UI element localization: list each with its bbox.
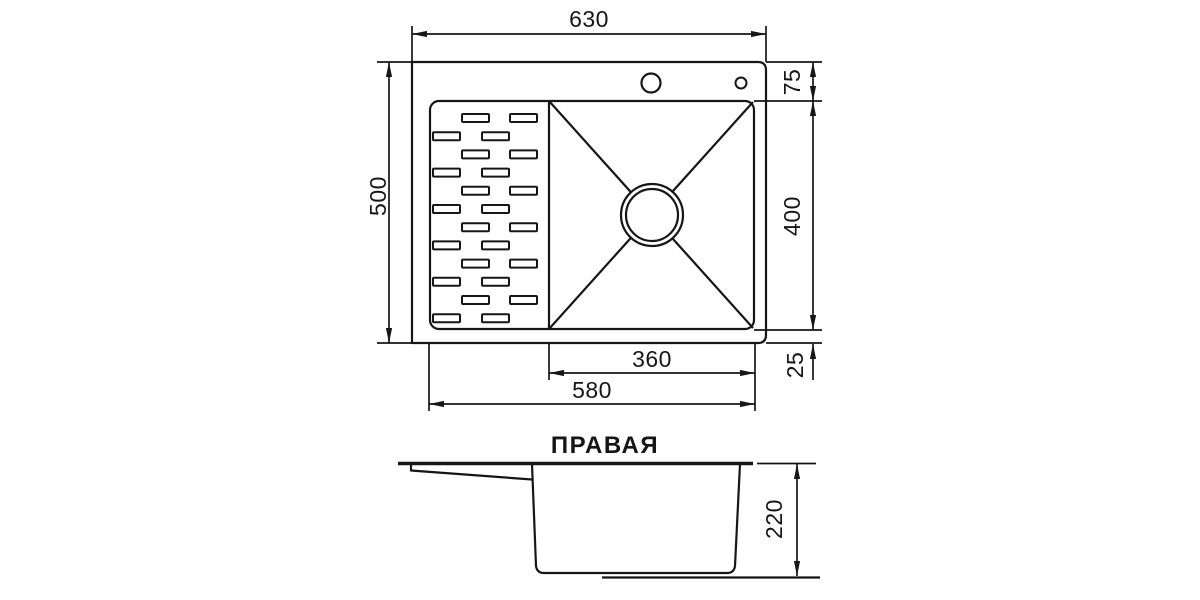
dim-label-front-ledge: 25: [782, 352, 808, 379]
drainboard-slot: [510, 114, 537, 122]
drainboard-slot: [433, 314, 460, 322]
dim-label-inner-width: 580: [572, 377, 612, 403]
side-drainboard-slope: [411, 465, 532, 480]
drainboard-slot: [462, 296, 489, 304]
drainboard-slot: [482, 241, 509, 249]
dimension-inner-width: 580: [429, 344, 755, 411]
top-view: [412, 62, 766, 343]
dim-label-height: 220: [761, 499, 787, 539]
side-view: [398, 464, 820, 578]
sink-inner-basin: [430, 101, 754, 329]
dim-label-bowl-depth: 400: [779, 196, 805, 236]
drainboard-slot: [462, 260, 489, 268]
drainboard-slot: [510, 223, 537, 231]
drainboard-slot: [482, 278, 509, 286]
dimension-back-ledge: 75: [754, 62, 822, 101]
drainboard-slot: [433, 278, 460, 286]
drainboard-slot: [510, 296, 537, 304]
dimension-front-ledge: 25: [766, 343, 822, 380]
drainboard-slot: [433, 205, 460, 213]
drainboard-slot: [482, 205, 509, 213]
dim-label-overall-depth: 500: [365, 176, 391, 216]
dim-label-back-ledge: 75: [779, 69, 805, 96]
dimension-bowl-depth: 400: [754, 101, 822, 330]
faucet-hole-small-icon: [736, 78, 747, 89]
dim-label-overall-width: 630: [569, 6, 609, 32]
drawing-svg: 630 500 75 400 25 360 580 ПРАВАЯ: [0, 0, 1200, 600]
drainboard-slot: [510, 150, 537, 158]
drainboard-slot: [433, 132, 460, 140]
drainboard-slot: [482, 132, 509, 140]
drainboard-slot: [510, 260, 537, 268]
drainboard-slot: [510, 187, 537, 195]
faucet-hole-large-icon: [642, 74, 661, 93]
dimension-height: 220: [757, 464, 816, 577]
drain-outer-circle-icon: [621, 184, 683, 246]
side-bowl-outline: [532, 464, 740, 573]
drainboard-slot: [462, 223, 489, 231]
dimension-overall-depth: 500: [365, 62, 412, 343]
drainboard-slot: [462, 187, 489, 195]
drainboard-slot: [433, 169, 460, 177]
drainboard-slot: [482, 314, 509, 322]
drainboard-slot: [462, 150, 489, 158]
drainboard-slot: [462, 114, 489, 122]
drainboard-slots: [433, 114, 537, 322]
dim-label-bowl-width: 360: [632, 346, 672, 372]
dimension-overall-width: 630: [412, 6, 766, 62]
view-title-label: ПРАВАЯ: [551, 432, 659, 459]
drainboard-slot: [433, 241, 460, 249]
sink-technical-drawing: 630 500 75 400 25 360 580 ПРАВАЯ: [0, 0, 1200, 600]
drainboard-slot: [482, 169, 509, 177]
